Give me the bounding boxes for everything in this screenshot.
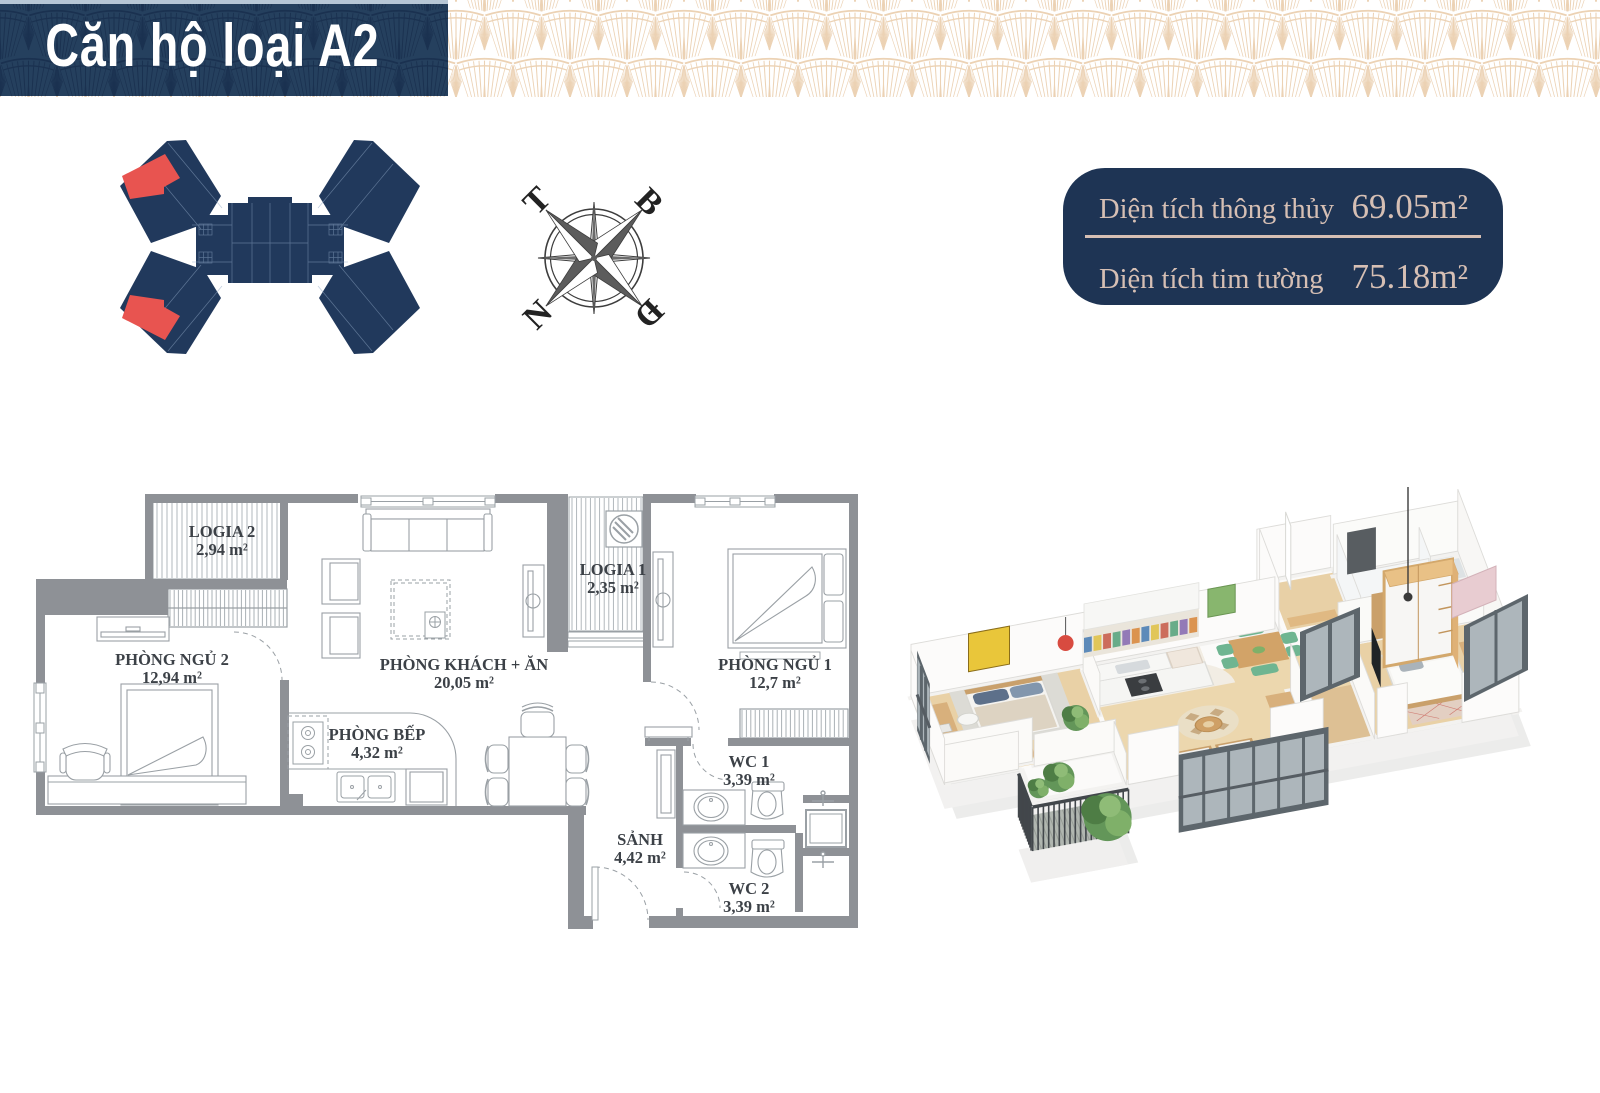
svg-text:SẢNH: SẢNH bbox=[617, 830, 663, 849]
svg-text:75.18m²: 75.18m² bbox=[1352, 257, 1468, 296]
svg-text:PHÒNG NGỦ 1: PHÒNG NGỦ 1 bbox=[718, 655, 832, 674]
svg-text:Diện tích tim tường: Diện tích tim tường bbox=[1099, 264, 1323, 295]
svg-text:Diện tích thông thủy: Diện tích thông thủy bbox=[1099, 194, 1335, 225]
svg-text:3,39 m²: 3,39 m² bbox=[723, 897, 775, 916]
svg-text:20,05 m²: 20,05 m² bbox=[434, 673, 494, 692]
svg-text:2,94 m²: 2,94 m² bbox=[196, 540, 248, 559]
svg-text:2,35 m²: 2,35 m² bbox=[587, 578, 639, 597]
svg-text:4,42 m²: 4,42 m² bbox=[614, 848, 666, 867]
svg-text:WC 1: WC 1 bbox=[729, 752, 770, 771]
svg-text:PHÒNG KHÁCH + ĂN: PHÒNG KHÁCH + ĂN bbox=[380, 655, 549, 674]
svg-text:Căn hộ loại A2: Căn hộ loại A2 bbox=[45, 12, 379, 79]
svg-text:3,39 m²: 3,39 m² bbox=[723, 770, 775, 789]
svg-text:12,94 m²: 12,94 m² bbox=[142, 668, 202, 687]
svg-text:PHÒNG BẾP: PHÒNG BẾP bbox=[329, 725, 426, 744]
svg-text:PHÒNG NGỦ 2: PHÒNG NGỦ 2 bbox=[115, 650, 229, 669]
svg-text:WC 2: WC 2 bbox=[729, 879, 770, 898]
svg-text:4,32 m²: 4,32 m² bbox=[351, 743, 403, 762]
svg-text:69.05m²: 69.05m² bbox=[1352, 187, 1468, 226]
svg-text:LOGIA 2: LOGIA 2 bbox=[189, 522, 255, 541]
svg-text:LOGIA 1: LOGIA 1 bbox=[580, 560, 646, 579]
svg-text:12,7 m²: 12,7 m² bbox=[749, 673, 801, 692]
